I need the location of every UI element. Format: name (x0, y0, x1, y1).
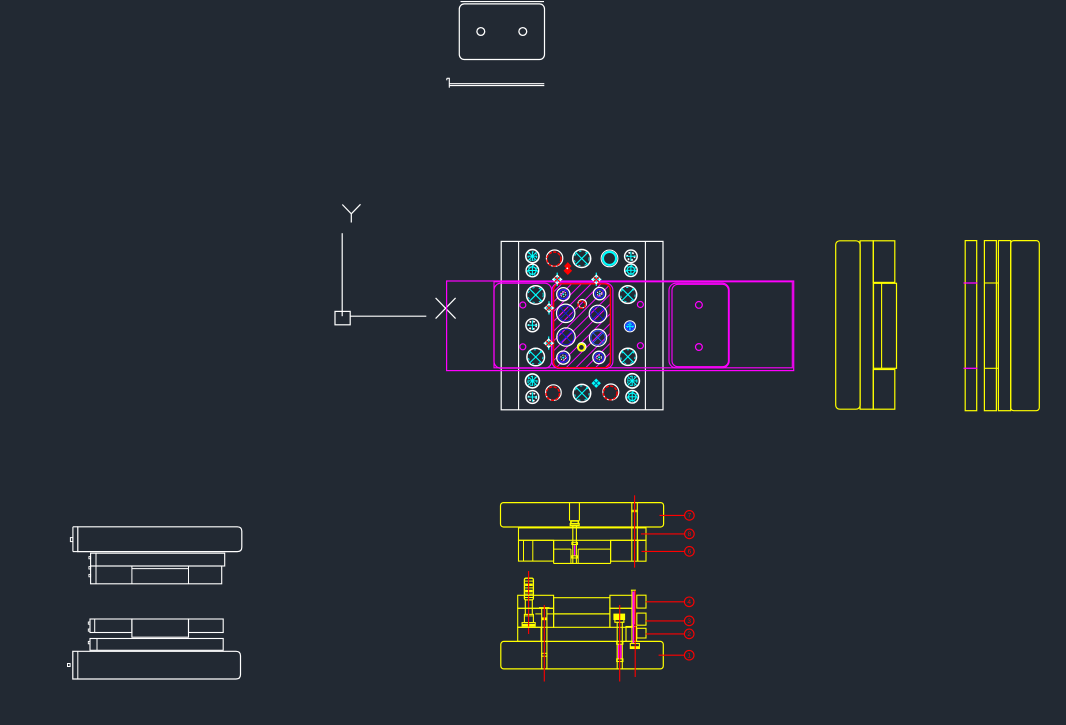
svg-text:1: 1 (687, 652, 691, 659)
svg-text:2: 2 (687, 631, 691, 638)
svg-text:3: 3 (687, 618, 691, 625)
svg-text:4: 4 (687, 599, 691, 606)
svg-text:6: 6 (688, 549, 692, 556)
svg-text:8: 8 (688, 531, 692, 538)
svg-text:7: 7 (688, 513, 692, 520)
